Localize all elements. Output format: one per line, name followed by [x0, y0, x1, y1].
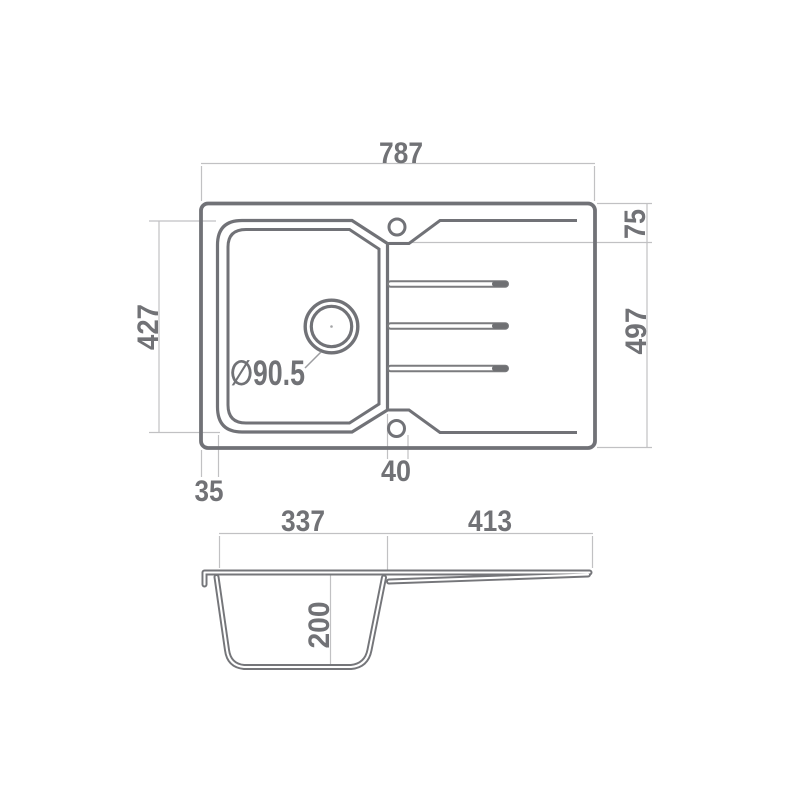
- label-drain-diameter: ∅90.5: [230, 354, 305, 393]
- groove-3-tip: [492, 366, 508, 372]
- label-bowl-depth: 200: [303, 602, 336, 649]
- section-profile-inner: [205, 573, 590, 668]
- drain-center-mark: [330, 325, 333, 328]
- tap-hole-bottom: [389, 421, 405, 437]
- label-overall-width: 787: [379, 137, 423, 170]
- groove-2: [388, 323, 508, 329]
- section-profile-outer: [205, 573, 590, 668]
- section-bowl-profile: [217, 577, 385, 667]
- section-dimension-lines: [219, 534, 593, 671]
- drainer-top-outline: [388, 221, 578, 244]
- label-tap-ledge-width: 40: [381, 455, 411, 488]
- label-section-bowl-width: 337: [281, 505, 325, 538]
- groove-1-tip: [492, 281, 508, 287]
- drainer-bottom-outline: [388, 410, 578, 433]
- bowl-outer-outline: [218, 221, 388, 433]
- label-overall-depth: 497: [620, 308, 653, 355]
- sink-technical-drawing: 787 427 75 497 35 40 ∅90.5 337 413 200: [0, 0, 800, 800]
- tap-hole-top: [389, 219, 405, 235]
- drain-leader-line: [305, 352, 321, 368]
- section-view: [205, 573, 590, 668]
- label-bowl-length: 427: [132, 304, 165, 350]
- label-bowl-left-offset: 35: [195, 475, 224, 508]
- groove-2-tip: [492, 323, 508, 329]
- label-section-drainboard-width: 413: [468, 505, 512, 538]
- drainer-grooves: [388, 281, 508, 371]
- drawing-canvas: 787 427 75 497 35 40 ∅90.5 337 413 200: [0, 0, 800, 800]
- groove-3: [388, 366, 508, 372]
- plan-view: [201, 204, 595, 449]
- label-rim-top-offset: 75: [619, 209, 652, 239]
- plan-dimension-lines: [149, 164, 652, 478]
- groove-1: [388, 281, 508, 287]
